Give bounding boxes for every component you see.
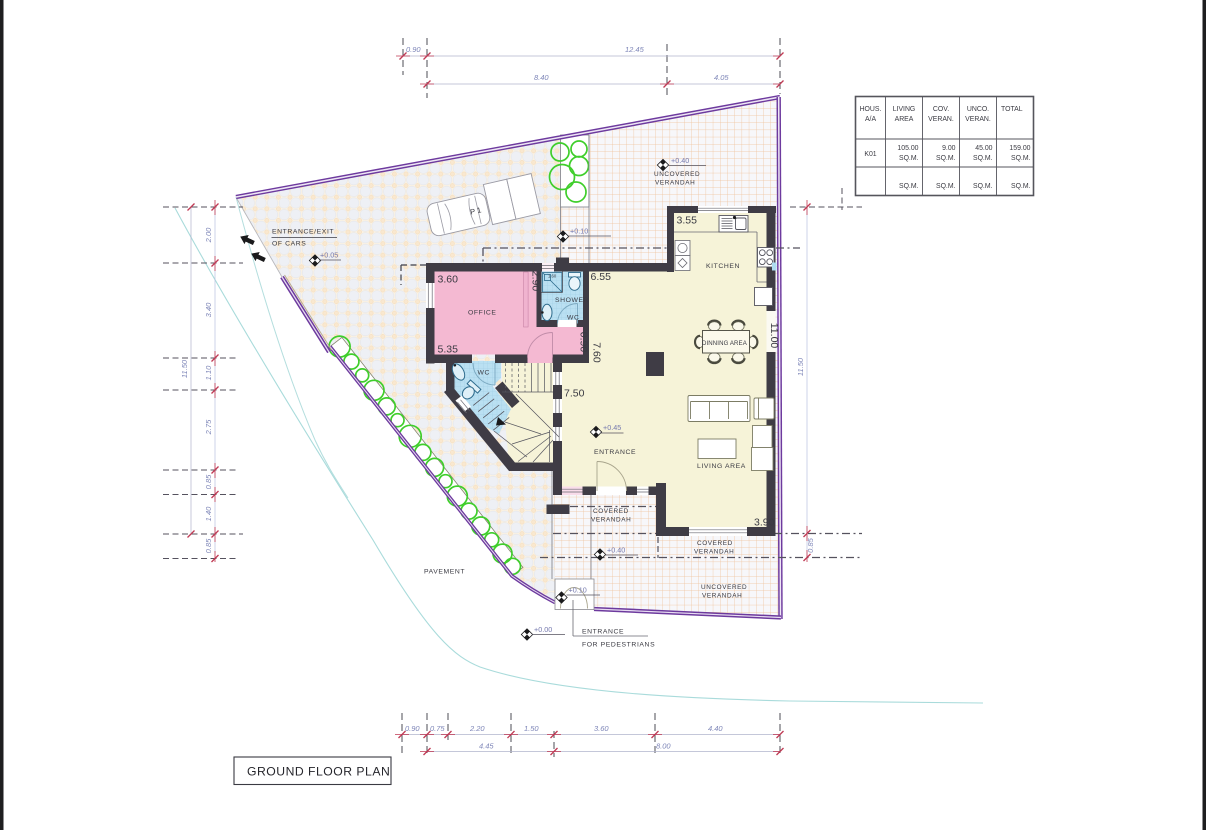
svg-text:159.00: 159.00 <box>1009 145 1030 152</box>
svg-text:+0.05: +0.05 <box>320 251 338 260</box>
svg-text:3.40: 3.40 <box>204 302 213 317</box>
svg-text:3.90: 3.90 <box>754 517 775 529</box>
svg-text:DINNING AREA: DINNING AREA <box>702 340 748 347</box>
svg-text:ENTRANCE/EXIT: ENTRANCE/EXIT <box>272 229 334 236</box>
svg-text:COVERED: COVERED <box>697 540 733 547</box>
svg-text:4.40: 4.40 <box>708 724 723 733</box>
svg-text:11.50: 11.50 <box>180 359 189 378</box>
svg-text:8.40: 8.40 <box>534 73 549 82</box>
svg-text:+0.40: +0.40 <box>671 156 689 165</box>
svg-text:1.60: 1.60 <box>548 274 557 279</box>
svg-text:HOUS.: HOUS. <box>860 106 882 113</box>
svg-text:9.00: 9.00 <box>942 145 956 152</box>
svg-text:7.60: 7.60 <box>591 342 603 363</box>
svg-text:105.00: 105.00 <box>897 145 918 152</box>
svg-text:SHOWER: SHOWER <box>555 297 589 304</box>
svg-text:UNCOVERED: UNCOVERED <box>654 171 700 178</box>
svg-text:LIVING AREA: LIVING AREA <box>697 463 746 470</box>
svg-text:LIVING: LIVING <box>893 106 916 113</box>
svg-text:VERAN.: VERAN. <box>965 116 991 123</box>
svg-text:2.75: 2.75 <box>204 419 213 435</box>
svg-text:SQ.M.: SQ.M. <box>1011 183 1031 190</box>
svg-text:2.20: 2.20 <box>469 724 485 733</box>
svg-text:WC: WC <box>567 315 580 322</box>
svg-text:+0.45: +0.45 <box>603 423 621 432</box>
svg-text:TOTAL: TOTAL <box>1001 106 1023 113</box>
svg-text:3.55: 3.55 <box>677 215 698 227</box>
svg-text:3.60: 3.60 <box>438 274 459 286</box>
svg-text:UNCOVERED: UNCOVERED <box>701 584 747 591</box>
svg-text:SQ.M.: SQ.M. <box>899 155 919 162</box>
svg-text:OF CARS: OF CARS <box>272 241 306 248</box>
svg-text:0.90: 0.90 <box>406 45 421 54</box>
svg-text:FOR PEDESTRIANS: FOR PEDESTRIANS <box>582 642 655 649</box>
svg-text:0.75: 0.75 <box>430 724 445 733</box>
svg-text:8.00: 8.00 <box>656 742 671 751</box>
svg-text:0.90: 0.90 <box>405 724 420 733</box>
svg-text:11.50: 11.50 <box>796 357 805 376</box>
svg-text:VERANDAH: VERANDAH <box>694 549 734 556</box>
svg-text:4.45: 4.45 <box>479 742 494 751</box>
svg-text:SQ.M.: SQ.M. <box>936 155 956 162</box>
svg-text:7.50: 7.50 <box>564 388 585 400</box>
svg-text:11.00: 11.00 <box>768 323 780 349</box>
svg-text:ENTRANCE: ENTRANCE <box>582 629 624 636</box>
svg-text:2.00: 2.00 <box>204 227 213 243</box>
svg-text:COV.: COV. <box>933 106 949 113</box>
svg-text:COVERED: COVERED <box>593 508 629 515</box>
svg-text:SQ.M.: SQ.M. <box>973 183 993 190</box>
svg-text:1.50: 1.50 <box>524 724 539 733</box>
svg-text:+0.40: +0.40 <box>607 546 625 555</box>
svg-text:SQ.M.: SQ.M. <box>936 183 956 190</box>
svg-text:4.05: 4.05 <box>714 73 729 82</box>
svg-text:VERAN.: VERAN. <box>928 116 954 123</box>
svg-text:OFFICE: OFFICE <box>468 310 497 317</box>
svg-text:1.10: 1.10 <box>204 365 213 380</box>
svg-text:6.55: 6.55 <box>591 271 612 283</box>
svg-text:ENTRANCE: ENTRANCE <box>594 449 636 456</box>
svg-text:SQ.M.: SQ.M. <box>973 155 993 162</box>
svg-text:1.40: 1.40 <box>204 506 213 521</box>
svg-text:SQ.M.: SQ.M. <box>899 183 919 190</box>
svg-text:PAVEMENT: PAVEMENT <box>424 569 465 576</box>
svg-text:KITCHEN: KITCHEN <box>706 263 740 270</box>
svg-text:GROUND FLOOR PLAN: GROUND FLOOR PLAN <box>247 765 390 779</box>
svg-text:0.90: 0.90 <box>578 332 590 353</box>
svg-text:3.60: 3.60 <box>594 724 609 733</box>
svg-text:A/A: A/A <box>865 116 877 123</box>
svg-text:0.85: 0.85 <box>204 538 213 553</box>
svg-text:WC: WC <box>478 370 491 377</box>
svg-text:2.90: 2.90 <box>530 271 542 292</box>
svg-text:UNCO.: UNCO. <box>967 106 989 113</box>
svg-text:VERANDAH: VERANDAH <box>702 593 742 600</box>
svg-text:+0.10: +0.10 <box>570 227 588 236</box>
svg-text:+0.00: +0.00 <box>534 625 552 634</box>
svg-text:SQ.M.: SQ.M. <box>1011 155 1031 162</box>
svg-text:45.00: 45.00 <box>975 145 992 152</box>
svg-text:VERANDAH: VERANDAH <box>655 180 695 187</box>
svg-text:0.85: 0.85 <box>806 537 815 552</box>
svg-text:K01: K01 <box>864 151 876 158</box>
svg-text:+0.10: +0.10 <box>569 586 587 595</box>
svg-text:0.85: 0.85 <box>204 474 213 489</box>
svg-text:5.35: 5.35 <box>438 344 459 356</box>
svg-text:12.45: 12.45 <box>625 45 645 54</box>
svg-text:AREA: AREA <box>895 116 914 123</box>
svg-text:VERANDAH: VERANDAH <box>591 517 631 524</box>
